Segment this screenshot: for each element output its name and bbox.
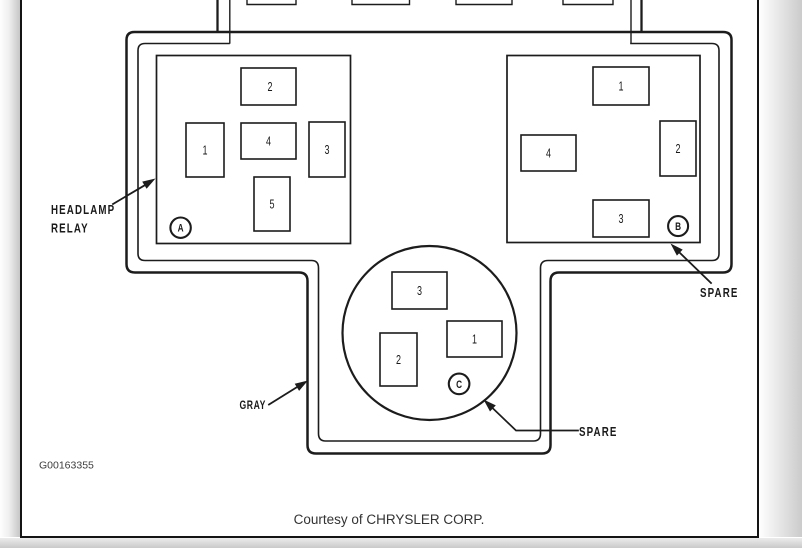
svg-text:2: 2 [396, 354, 401, 368]
svg-text:1: 1 [618, 80, 623, 94]
svg-text:G00163355: G00163355 [39, 460, 94, 472]
svg-text:1: 1 [202, 144, 207, 158]
svg-text:3: 3 [324, 144, 329, 158]
svg-text:C: C [456, 379, 462, 391]
svg-text:1: 1 [472, 333, 477, 347]
svg-text:GRAY: GRAY [240, 400, 266, 413]
svg-text:SPARE: SPARE [579, 426, 617, 440]
svg-text:4: 4 [546, 147, 551, 161]
svg-text:SPARE: SPARE [700, 287, 738, 301]
svg-text:RELAY: RELAY [51, 222, 89, 236]
svg-text:3: 3 [417, 285, 422, 299]
svg-text:2: 2 [267, 81, 272, 95]
svg-text:2: 2 [675, 143, 680, 157]
svg-text:5: 5 [269, 198, 274, 212]
svg-text:B: B [675, 221, 681, 233]
svg-text:Courtesy of CHRYSLER CORP.: Courtesy of CHRYSLER CORP. [294, 512, 485, 527]
svg-text:HEADLAMP: HEADLAMP [51, 204, 115, 218]
svg-text:3: 3 [618, 213, 623, 227]
svg-text:4: 4 [266, 135, 271, 149]
svg-text:A: A [178, 223, 184, 235]
